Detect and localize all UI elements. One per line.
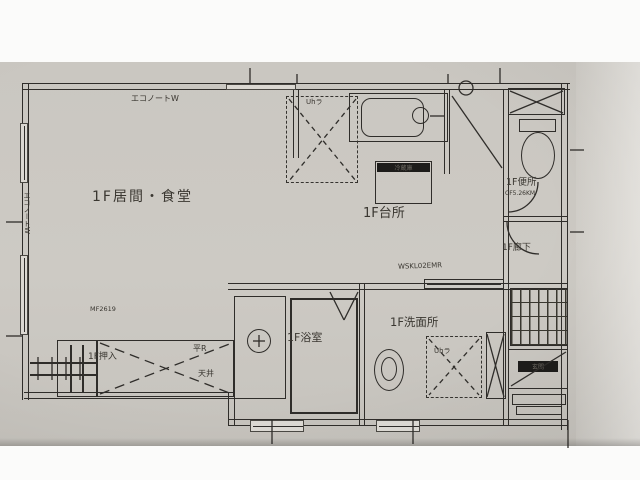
note-closet-2: 天井 bbox=[198, 370, 214, 378]
entry-compartment-diagonal bbox=[452, 81, 502, 168]
floorplan-drawing: 冷蔵庫 玄関 bbox=[0, 0, 640, 480]
room-label-bath: 1F浴室 bbox=[287, 332, 322, 343]
line-overlay bbox=[0, 0, 640, 480]
note-top-wall: エコノートW bbox=[131, 95, 179, 103]
entry-diagonal bbox=[511, 352, 566, 386]
room-label-washroom: 1F洗面所 bbox=[390, 317, 438, 329]
note-mf: MF2619 bbox=[90, 306, 116, 313]
room-label-closet: 1F押入 bbox=[88, 353, 117, 362]
photo-bottom-shadow bbox=[0, 438, 640, 446]
room-label-living: 1F居間・食堂 bbox=[92, 190, 193, 204]
column-x-cross bbox=[487, 334, 504, 397]
louver-window-ticks bbox=[38, 357, 80, 380]
note-toilet: CF5.26KM bbox=[505, 191, 535, 197]
note-closet-1: 平R bbox=[193, 345, 207, 353]
room-label-kitchen: 1F台所 bbox=[363, 207, 405, 220]
room-label-toilet: 1F便所 bbox=[506, 178, 537, 188]
dimension-ticks bbox=[6, 68, 584, 448]
note-laundry: Uhラ bbox=[434, 348, 451, 355]
note-cabinet: Uhラ bbox=[306, 99, 323, 106]
note-left-wall: エコノートW bbox=[23, 192, 30, 234]
storage-x-cross bbox=[510, 91, 563, 113]
cabinet-x-cross bbox=[289, 99, 356, 181]
floorplan-photo: 冷蔵庫 玄関 bbox=[0, 0, 640, 480]
bath-folding-door bbox=[330, 292, 358, 320]
room-label-hall: 1F廊下 bbox=[502, 244, 531, 253]
